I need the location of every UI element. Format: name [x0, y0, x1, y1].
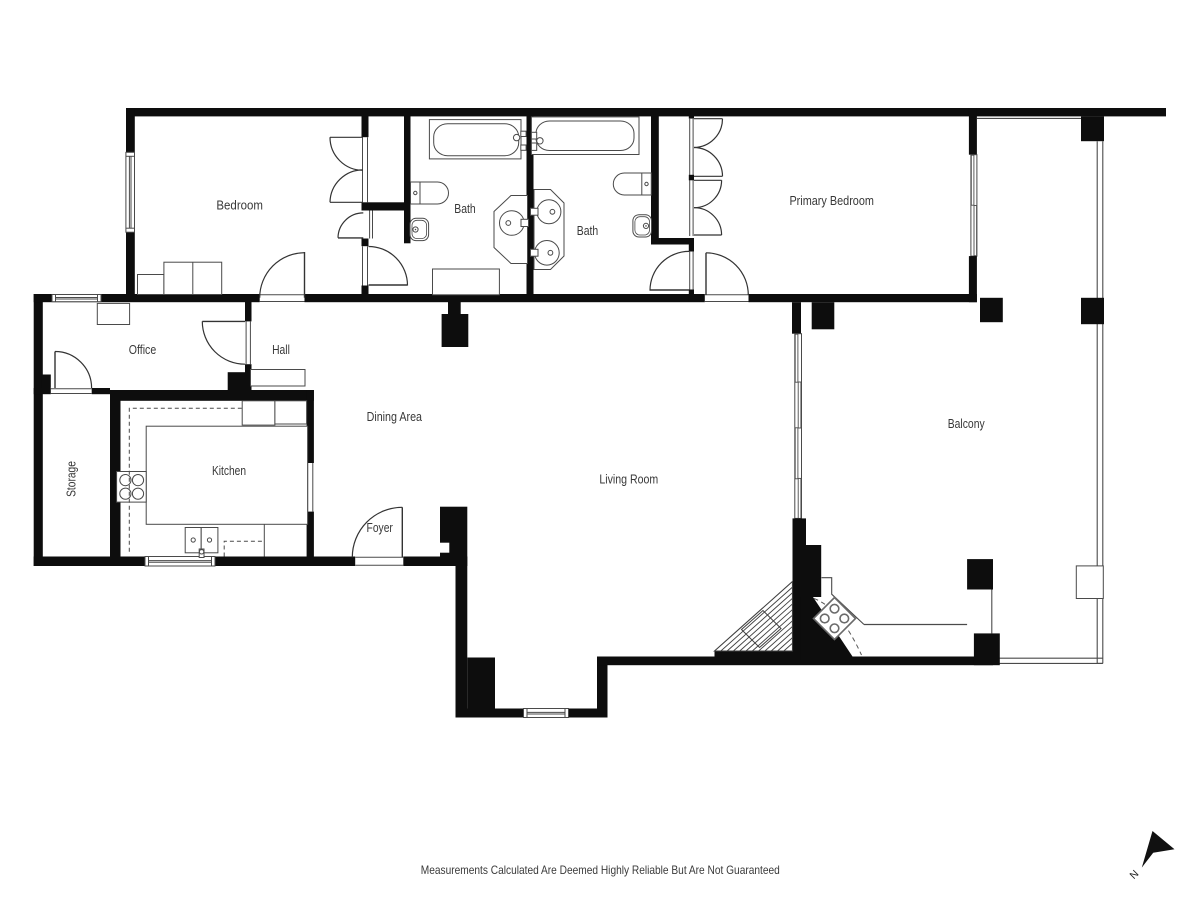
- svg-text:Living Room: Living Room: [599, 472, 658, 487]
- svg-text:Office: Office: [129, 342, 156, 357]
- svg-text:Bath: Bath: [577, 223, 599, 238]
- svg-text:Measurements Calculated Are De: Measurements Calculated Are Deemed Highl…: [421, 864, 780, 877]
- svg-text:Dining Area: Dining Area: [367, 409, 423, 424]
- svg-text:Storage: Storage: [64, 461, 79, 497]
- svg-text:Primary Bedroom: Primary Bedroom: [789, 193, 874, 208]
- svg-text:Foyer: Foyer: [367, 520, 394, 535]
- svg-text:Balcony: Balcony: [948, 416, 985, 431]
- svg-text:Hall: Hall: [272, 342, 290, 357]
- svg-text:Kitchen: Kitchen: [212, 463, 246, 478]
- svg-text:Bedroom: Bedroom: [216, 198, 263, 213]
- svg-text:Bath: Bath: [454, 201, 476, 216]
